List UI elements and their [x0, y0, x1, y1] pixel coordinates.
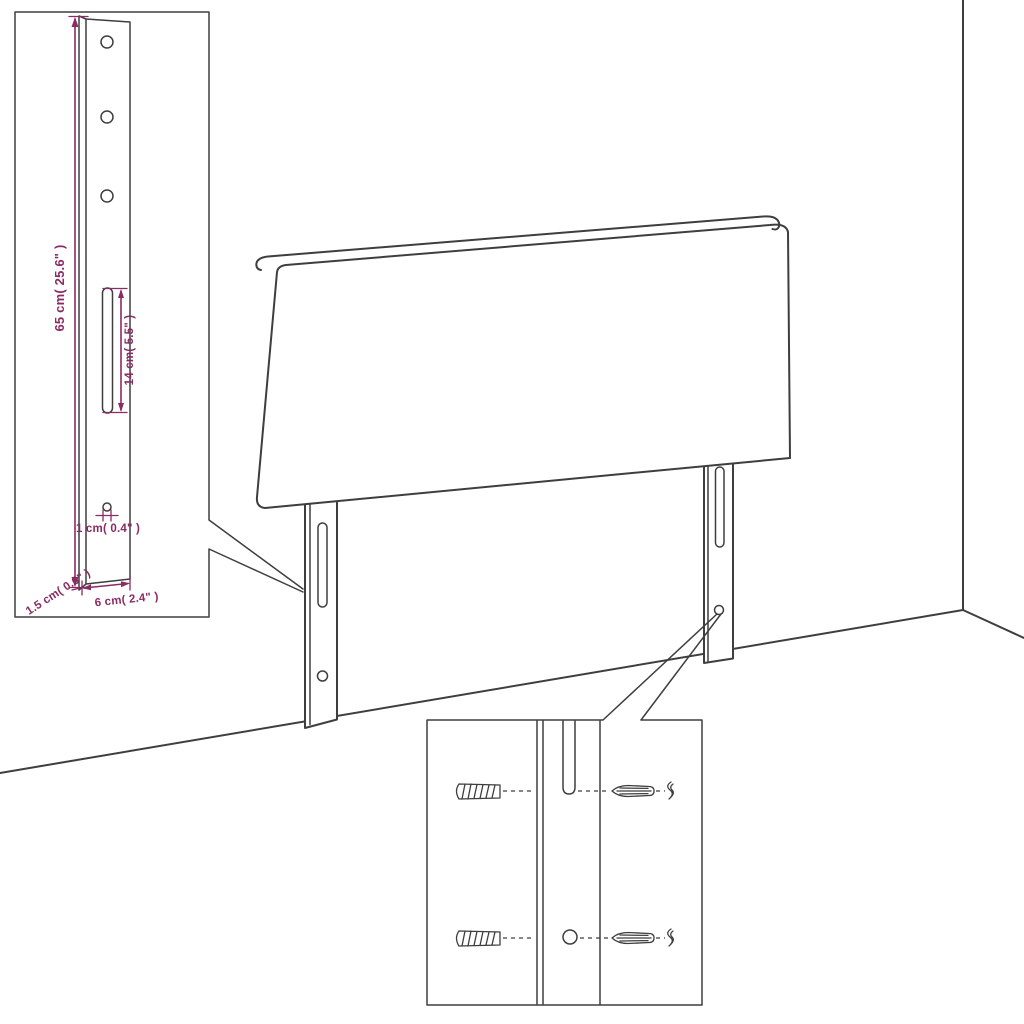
hardware-callout-line-left [603, 614, 717, 720]
headboard-left-leg [305, 470, 337, 728]
bracket-detail-inset: 65 cm( 25.6" ) 14 cm( 5.5" ) 1 cm( 0.4" … [15, 12, 209, 618]
detail-callout-line-upper [209, 520, 303, 589]
floor-line-right [963, 610, 1024, 638]
headboard-dimension-diagram: 65 cm( 25.6" ) 14 cm( 5.5" ) 1 cm( 0.4" … [0, 0, 1024, 1024]
height-dimension-label: 65 cm( 25.6" ) [52, 244, 67, 331]
headboard-panel-face [257, 225, 790, 508]
bracket-drawing [79, 16, 130, 590]
hole-dimension-label: 1 cm( 0.4" ) [76, 523, 140, 535]
diagram-canvas: 65 cm( 25.6" ) 14 cm( 5.5" ) 1 cm( 0.4" … [0, 0, 1024, 1024]
slot-dimension-label: 14 cm( 5.5" ) [124, 315, 136, 386]
headboard-panel [256, 216, 790, 508]
detail-callout-lines [209, 520, 303, 592]
hardware-detail-inset [427, 720, 702, 1005]
detail-callout-line-lower [209, 549, 303, 592]
hardware-callout-line-right [641, 614, 721, 720]
hardware-inset-background [427, 720, 702, 1005]
